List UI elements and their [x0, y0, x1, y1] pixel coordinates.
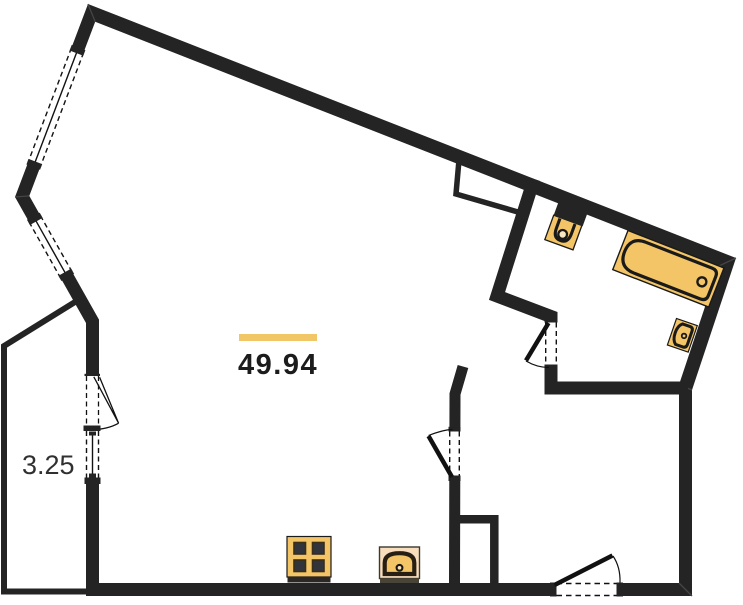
- svg-text:49.94: 49.94: [238, 349, 318, 381]
- svg-text:3.25: 3.25: [22, 450, 75, 480]
